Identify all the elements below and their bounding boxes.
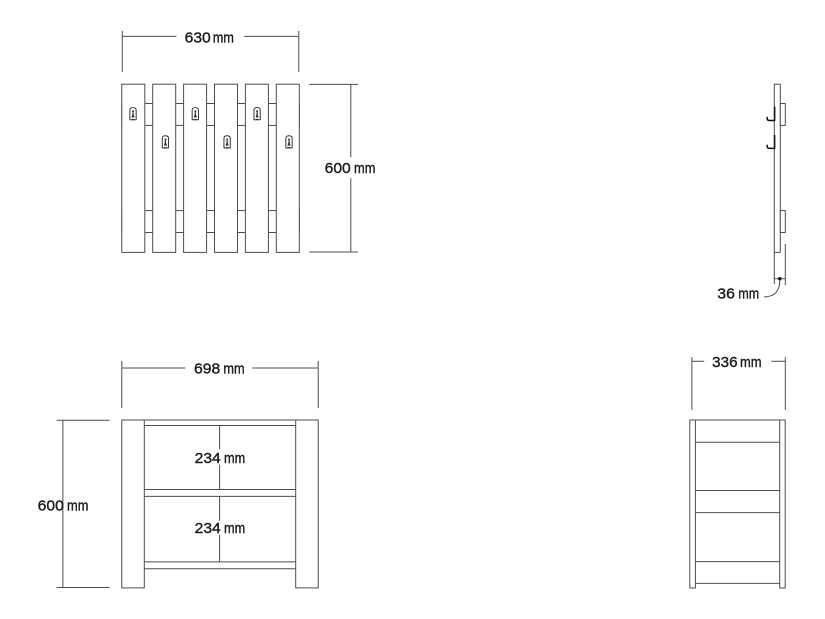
svg-text:336: 336 [712,355,737,371]
svg-text:mm: mm [223,362,244,378]
svg-text:234: 234 [195,451,221,467]
svg-text:36: 36 [717,287,735,303]
svg-text:mm: mm [738,287,759,303]
svg-text:630: 630 [185,31,211,47]
svg-text:mm: mm [354,161,375,177]
svg-text:600: 600 [38,499,64,515]
svg-text:698: 698 [194,362,220,378]
svg-text:mm: mm [67,499,88,515]
svg-text:600: 600 [325,161,351,177]
svg-text:mm: mm [224,451,245,467]
svg-text:mm: mm [224,521,245,537]
svg-text:mm: mm [740,355,762,371]
svg-text:234: 234 [195,521,221,537]
svg-text:mm: mm [213,31,234,47]
